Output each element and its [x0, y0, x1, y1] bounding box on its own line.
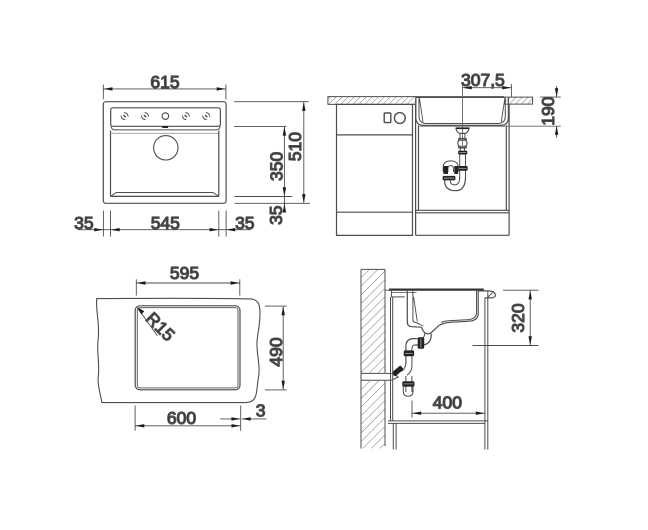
- svg-text:307,5: 307,5: [461, 70, 505, 90]
- svg-text:490: 490: [266, 337, 286, 366]
- svg-text:35: 35: [235, 213, 254, 233]
- svg-text:190: 190: [538, 96, 558, 125]
- svg-text:510: 510: [285, 132, 305, 161]
- svg-text:350: 350: [266, 152, 286, 181]
- svg-text:R15: R15: [142, 308, 179, 345]
- svg-text:595: 595: [170, 263, 199, 283]
- svg-text:615: 615: [150, 72, 179, 92]
- svg-text:320: 320: [508, 303, 528, 332]
- svg-text:545: 545: [151, 213, 180, 233]
- svg-text:400: 400: [433, 393, 462, 413]
- svg-text:35: 35: [266, 205, 286, 224]
- svg-text:3: 3: [256, 401, 266, 421]
- svg-text:35: 35: [74, 213, 93, 233]
- svg-text:600: 600: [167, 408, 196, 428]
